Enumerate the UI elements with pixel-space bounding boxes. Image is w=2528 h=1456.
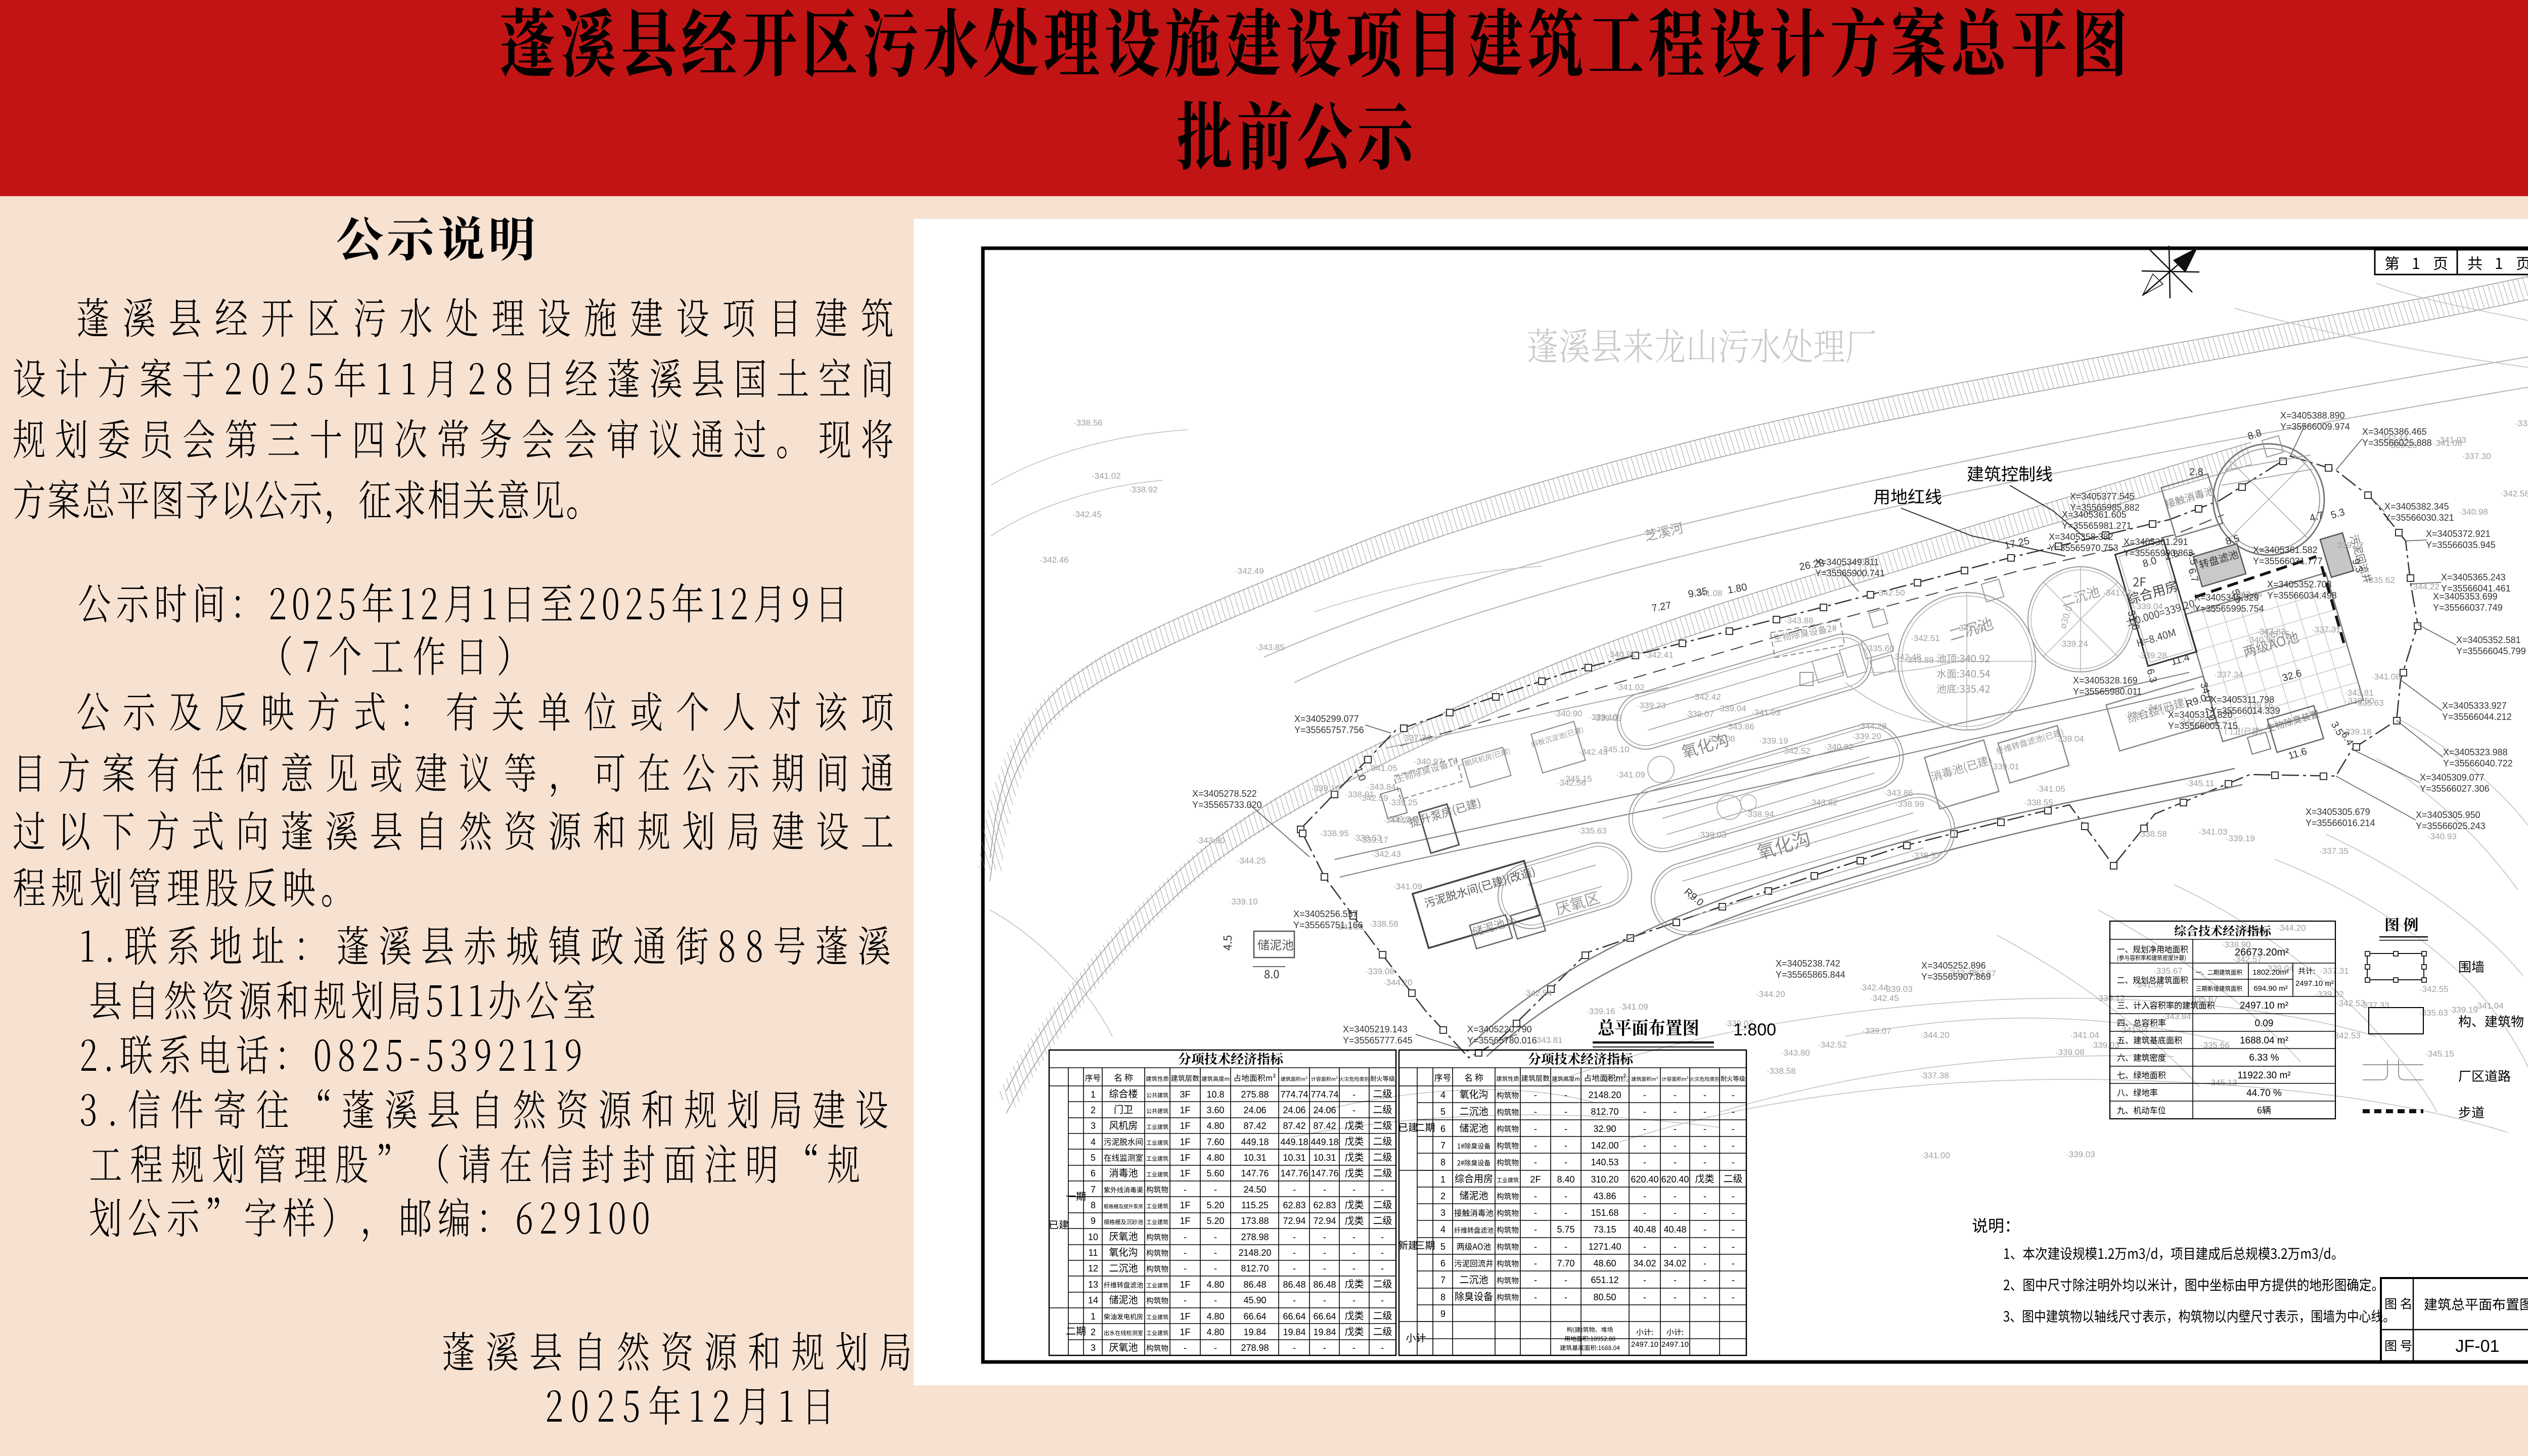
svg-text:Y=35566009.974: Y=35566009.974 [2280,422,2350,432]
svg-text:2148.20: 2148.20 [1238,1248,1271,1258]
svg-text:-: - [1732,1191,1735,1201]
svg-text:X=3405345.329: X=3405345.329 [2194,593,2259,603]
svg-text:·339.19: ·339.19 [2226,834,2255,843]
svg-text:·341.05: ·341.05 [2036,784,2065,794]
svg-text:·341.09: ·341.09 [1616,770,1645,780]
svg-text:X=3405352.703: X=3405352.703 [2267,579,2332,589]
svg-text:2497.10: 2497.10 [1631,1340,1658,1349]
svg-text:·338.58: ·338.58 [1767,1066,1796,1076]
svg-text:·340.90: ·340.90 [1553,709,1583,718]
svg-text:·341.08: ·341.08 [2371,672,2401,681]
svg-text:278.98: 278.98 [1241,1232,1269,1242]
svg-text:0.09: 0.09 [2255,1018,2274,1029]
svg-text:87.42: 87.42 [1243,1121,1266,1131]
svg-text:-: - [1534,1242,1537,1252]
svg-text:10: 10 [1088,1232,1098,1242]
svg-text:Y=35565900.741: Y=35565900.741 [1815,568,1885,578]
svg-text:4: 4 [1091,1137,1096,1147]
svg-text:·341.02: ·341.02 [2103,588,2132,598]
svg-text:5.20: 5.20 [1206,1200,1224,1210]
svg-text:151.68: 151.68 [1591,1208,1618,1218]
svg-text:-: - [1184,1263,1187,1273]
svg-text:-: - [1703,1157,1706,1167]
svg-text:·345.15: ·345.15 [2425,1049,2454,1059]
svg-text:·345.11: ·345.11 [2186,779,2214,788]
svg-text:·339.08: ·339.08 [1365,967,1394,976]
svg-text:3: 3 [1091,1121,1096,1131]
svg-text:-: - [1643,1208,1646,1218]
svg-text:87.42: 87.42 [1313,1121,1336,1131]
svg-text:X=3405361.605: X=3405361.605 [2062,510,2127,520]
svg-text:X=3405386.465: X=3405386.465 [2362,427,2427,437]
svg-text:1: 1 [1091,1311,1096,1322]
svg-text:3: 3 [1091,1343,1096,1353]
svg-text:4.80: 4.80 [1206,1311,1224,1322]
svg-text:·339.04: ·339.04 [2055,734,2084,744]
svg-text:X=3405372.921: X=3405372.921 [2426,529,2491,539]
svg-text:·342.52: ·342.52 [1601,1074,1631,1084]
svg-text:66.64: 66.64 [1283,1311,1305,1322]
svg-text:·341.05: ·341.05 [1368,763,1397,773]
svg-text:4.80: 4.80 [1206,1280,1224,1290]
svg-text:2497.10 m²: 2497.10 m² [2295,979,2334,988]
svg-text:8: 8 [1091,1200,1096,1210]
svg-text:-: - [1323,1343,1326,1353]
svg-text:4.80: 4.80 [1206,1121,1224,1131]
svg-text:13: 13 [1088,1280,1098,1290]
svg-text:·339.08: ·339.08 [2055,1048,2085,1057]
svg-text:62.83: 62.83 [1313,1200,1336,1210]
svg-text:6: 6 [1091,1168,1096,1178]
svg-text:·343.81: ·343.81 [2344,688,2374,698]
svg-text:9: 9 [1091,1216,1096,1226]
svg-text:X=3405311.798: X=3405311.798 [2210,695,2274,705]
svg-text:·342.51: ·342.51 [1911,633,1940,643]
svg-text:1F: 1F [1180,1327,1190,1337]
svg-text:·338.57: ·338.57 [1911,851,1940,860]
svg-text:-: - [1323,1263,1326,1273]
svg-text:·339.20: ·339.20 [1852,732,1881,741]
svg-text:5.20: 5.20 [1206,1216,1224,1226]
svg-text:X=3405361.291: X=3405361.291 [2124,537,2188,547]
svg-text:·343.86: ·343.86 [1725,722,1754,732]
svg-text:5: 5 [1440,1242,1446,1252]
svg-text:86.48: 86.48 [1243,1280,1266,1290]
svg-text:·339.19: ·339.19 [1311,784,1340,793]
svg-text:·341.04: ·341.04 [2474,1001,2504,1011]
svg-text:-: - [1703,1141,1706,1151]
svg-text:·344.20: ·344.20 [2277,923,2306,933]
svg-text:-: - [1703,1124,1706,1134]
svg-text:-: - [1703,1275,1706,1285]
svg-text:310.20: 310.20 [1591,1174,1618,1185]
svg-text:X=3405305.679: X=3405305.679 [2306,807,2370,817]
svg-text:-: - [1674,1242,1677,1252]
svg-text:2.8: 2.8 [2189,467,2203,478]
svg-text:·339.24: ·339.24 [1386,814,1416,824]
svg-text:Y=35566014.339: Y=35566014.339 [2210,706,2280,716]
svg-text:-: - [1564,1157,1567,1167]
svg-text:-: - [1534,1090,1537,1100]
svg-text:·338.56: ·338.56 [1073,418,1103,428]
svg-text:·342.50: ·342.50 [1876,588,1905,598]
svg-text:·339.02: ·339.02 [2334,540,2364,550]
svg-text:-: - [1323,1248,1326,1258]
svg-text:-: - [1703,1208,1706,1218]
svg-text:-: - [1643,1090,1646,1100]
svg-text:·335.63: ·335.63 [1577,826,1607,836]
svg-text:X=3405377.545: X=3405377.545 [2070,491,2135,502]
svg-text:·341.03: ·341.03 [2198,827,2228,837]
svg-text:-: - [1674,1124,1677,1134]
svg-text:-: - [1381,1263,1384,1273]
svg-text:·338.99: ·338.99 [1895,799,1924,809]
svg-text:26673.20m²: 26673.20m² [2235,947,2289,958]
svg-text:2F: 2F [1530,1174,1541,1185]
svg-text:-: - [1674,1090,1677,1100]
svg-text:·342.56: ·342.56 [1557,778,1586,788]
svg-text:115.25: 115.25 [1241,1200,1269,1210]
svg-text:Y=35565780.016: Y=35565780.016 [1467,1035,1537,1045]
svg-text:-: - [1703,1090,1706,1100]
svg-text:-: - [1732,1124,1735,1134]
svg-text:774.74: 774.74 [1311,1089,1338,1100]
svg-text:·337.34: ·337.34 [1402,733,1431,743]
svg-text:5: 5 [1091,1153,1096,1163]
svg-text:-: - [1381,1343,1384,1353]
svg-text:-: - [1293,1295,1296,1305]
svg-text:-: - [1732,1292,1735,1302]
svg-text:6.33 %: 6.33 % [2249,1053,2279,1063]
svg-text:·342.46: ·342.46 [1040,555,1069,565]
svg-text:-: - [1674,1157,1677,1167]
svg-text:-: - [1674,1275,1677,1285]
svg-text:8.40: 8.40 [1557,1174,1574,1185]
svg-text:72.94: 72.94 [1313,1216,1336,1226]
svg-text:-: - [1732,1242,1735,1252]
svg-text:Y=35566005.715: Y=35566005.715 [2168,721,2238,731]
svg-text:·343.82: ·343.82 [1809,798,1838,807]
svg-text:-: - [1564,1191,1567,1201]
svg-text:·343.80: ·343.80 [1781,1048,1810,1058]
svg-text:·340.92: ·340.92 [1824,742,1854,752]
svg-text:-: - [1534,1191,1537,1201]
svg-text:10.31: 10.31 [1243,1153,1266,1163]
svg-text:6: 6 [1440,1124,1446,1134]
svg-text:·339.07: ·339.07 [1685,709,1714,719]
svg-text:·343.88: ·343.88 [1784,616,1814,625]
svg-text:-: - [1732,1258,1735,1268]
svg-text:8: 8 [1440,1157,1446,1167]
svg-text:7: 7 [1440,1141,1446,1151]
svg-text:48.60: 48.60 [1593,1258,1616,1268]
svg-text:9: 9 [1440,1309,1446,1319]
svg-text:-: - [1214,1295,1217,1305]
svg-text:·344.20: ·344.20 [1383,978,1413,987]
svg-text:·341.03: ·341.03 [2437,435,2466,445]
svg-text:-: - [1352,1343,1356,1353]
svg-text:10.8: 10.8 [1206,1089,1224,1100]
svg-text:1802.20m²: 1802.20m² [2252,968,2289,977]
svg-text:Y=35565981.271: Y=35565981.271 [2062,521,2132,531]
svg-text:·339.28: ·339.28 [2138,651,2167,660]
svg-text:4.80: 4.80 [1206,1327,1224,1337]
svg-text:147.76: 147.76 [1241,1168,1269,1178]
svg-text:·340.97: ·340.97 [1414,757,1443,766]
svg-text:-: - [1703,1242,1706,1252]
svg-text:·339.10: ·339.10 [1229,897,1258,906]
svg-text:147.76: 147.76 [1280,1168,1308,1178]
svg-text:·339.07: ·339.07 [1862,1026,1891,1036]
svg-text:1F: 1F [1180,1153,1190,1163]
svg-text:-: - [1214,1263,1217,1273]
svg-text:·337.38: ·337.38 [1920,1071,1949,1080]
svg-text:·337.34: ·337.34 [2214,670,2243,679]
svg-text:-: - [1352,1263,1356,1273]
svg-text:44.70 %: 44.70 % [2246,1088,2282,1099]
svg-text:-: - [1643,1191,1646,1201]
svg-text:-: - [1534,1258,1537,1268]
svg-text:2: 2 [1091,1327,1096,1337]
svg-text:1:800: 1:800 [1733,1020,1776,1039]
svg-text:·339.01: ·339.01 [1990,762,2019,771]
svg-text:·342.58: ·342.58 [2500,489,2528,498]
svg-text:-: - [1352,1185,1356,1195]
svg-text:12: 12 [1088,1263,1098,1273]
svg-text:1: 1 [1091,1089,1096,1100]
svg-text:Y=35566040.722: Y=35566040.722 [2443,758,2513,768]
svg-text:·339.16: ·339.16 [1586,1007,1615,1016]
svg-text:-: - [1564,1090,1567,1100]
svg-text:·339.17: ·339.17 [1359,835,1388,845]
svg-text:-: - [1732,1090,1735,1100]
svg-text:Y=35566025.888: Y=35566025.888 [2362,438,2432,448]
svg-text:19.84: 19.84 [1283,1327,1305,1337]
svg-text:-: - [1352,1295,1356,1305]
svg-text:X=3405220.790: X=3405220.790 [1467,1024,1532,1034]
svg-text:-: - [1674,1191,1677,1201]
svg-text:10.31: 10.31 [1283,1153,1305,1163]
svg-text:87.42: 87.42 [1283,1121,1305,1131]
svg-text:·342.41: ·342.41 [1644,650,1674,660]
svg-text:-: - [1381,1295,1384,1305]
svg-text:·343.80: ·343.80 [1196,836,1225,845]
svg-text:-: - [1293,1232,1296,1242]
svg-text:8: 8 [1440,1292,1446,1302]
svg-text:-: - [1293,1248,1296,1258]
svg-text:·338.92: ·338.92 [1128,485,1158,494]
svg-text:-: - [1564,1141,1567,1151]
svg-text:·340.93: ·340.93 [2427,832,2457,841]
svg-text:620.40: 620.40 [1631,1174,1658,1185]
svg-text:·341.04: ·341.04 [2070,1030,2099,1040]
svg-text:-: - [1643,1242,1646,1252]
svg-text:Y=35565777.645: Y=35565777.645 [1343,1035,1413,1045]
svg-text:Y=35566034.498: Y=35566034.498 [2267,590,2337,601]
svg-text:-: - [1381,1248,1384,1258]
svg-text:Y=35565990.863: Y=35565990.863 [2124,548,2193,558]
svg-text:·342.55: ·342.55 [2419,984,2449,994]
svg-text:Y=35566030.321: Y=35566030.321 [2384,513,2454,523]
svg-text:-: - [1214,1185,1217,1195]
svg-text:11: 11 [1089,1248,1098,1258]
svg-text:·342.49: ·342.49 [1235,566,1264,576]
svg-text:·343.83: ·343.83 [2256,627,2286,636]
svg-text:-: - [1643,1141,1646,1151]
svg-text:-: - [1643,1157,1646,1167]
svg-text:X=3405252.896: X=3405252.896 [1921,961,1986,971]
svg-text:·335.60: ·335.60 [1865,644,1894,653]
svg-text:-: - [1703,1224,1706,1235]
svg-text:7.60: 7.60 [1206,1137,1224,1147]
svg-text:3.60: 3.60 [1206,1105,1224,1115]
svg-text:66.64: 66.64 [1313,1311,1336,1322]
svg-text:·337.31: ·337.31 [2320,966,2349,976]
svg-text:X=3405238.742: X=3405238.742 [1776,959,1840,969]
svg-text:·339.02: ·339.02 [2315,989,2344,999]
svg-text:·337.30: ·337.30 [2462,451,2491,461]
svg-text:2: 2 [1440,1191,1446,1201]
svg-text:·339.19: ·339.19 [2449,1005,2478,1015]
svg-text:-: - [1534,1275,1537,1285]
svg-text:-: - [1352,1248,1356,1258]
svg-text:·342.52: ·342.52 [1818,1040,1847,1050]
svg-text:812.70: 812.70 [1591,1107,1618,1117]
svg-text:·335.67: ·335.67 [2153,966,2183,976]
svg-text:X=3405352.581: X=3405352.581 [2456,635,2521,645]
svg-text:40.48: 40.48 [1663,1224,1686,1235]
svg-text:19.84: 19.84 [1243,1327,1266,1337]
svg-text:·338.58: ·338.58 [2138,829,2167,839]
svg-text:-: - [1323,1232,1326,1242]
svg-text:-: - [1352,1089,1356,1100]
svg-text:-: - [1674,1208,1677,1218]
svg-text:X=3405361.582: X=3405361.582 [2253,545,2318,555]
svg-text:X=3405278.522: X=3405278.522 [1192,789,1257,799]
svg-text:-: - [1534,1107,1537,1117]
svg-text:X=3405309.077: X=3405309.077 [2420,772,2485,783]
svg-text:·341.03: ·341.03 [1751,708,1781,717]
svg-text:-: - [1732,1141,1735,1151]
svg-text:1: 1 [1440,1174,1446,1185]
svg-text:774.74: 774.74 [1280,1089,1308,1100]
svg-text:-: - [1732,1157,1735,1167]
svg-text:·337.33: ·337.33 [2360,1000,2389,1010]
svg-text:·339.03: ·339.03 [2066,1150,2095,1159]
svg-text:·339.24: ·339.24 [2059,639,2088,649]
svg-text:·338.58: ·338.58 [1369,919,1398,929]
svg-text:-: - [1214,1232,1217,1242]
svg-text:-: - [1184,1232,1187,1242]
svg-text:-: - [1381,1232,1384,1242]
svg-text:66.64: 66.64 [1243,1311,1266,1322]
svg-text:-: - [1643,1124,1646,1134]
svg-text:11922.30 m²: 11922.30 m² [2237,1070,2290,1081]
svg-text:34.02: 34.02 [1663,1258,1686,1268]
svg-text:7: 7 [1091,1185,1096,1195]
svg-text:X=3405323.988: X=3405323.988 [2443,747,2508,757]
svg-text:·344.20: ·344.20 [1920,1030,1950,1040]
svg-text:Y=35565980.011: Y=35565980.011 [2073,687,2142,697]
svg-text:-: - [1184,1248,1187,1258]
svg-text:X=3405328.169: X=3405328.169 [2073,675,2138,686]
svg-text:·339.19: ·339.19 [1759,736,1788,746]
svg-text:X=3405256.557: X=3405256.557 [1293,909,1358,919]
svg-text:·342.52: ·342.52 [1781,746,1811,756]
svg-text:·341.00: ·341.00 [1921,1151,1950,1160]
svg-text:-: - [1564,1275,1567,1285]
svg-text:173.88: 173.88 [1241,1216,1269,1226]
svg-text:·340.98: ·340.98 [2459,507,2488,517]
svg-text:-: - [1732,1107,1735,1117]
svg-text:4.80: 4.80 [1206,1153,1224,1163]
svg-text:45.90: 45.90 [1243,1295,1266,1305]
svg-text:Y=35566037.749: Y=35566037.749 [2433,603,2503,613]
svg-text:34.02: 34.02 [1633,1258,1656,1268]
svg-text:·335.63: ·335.63 [2355,698,2384,708]
svg-text:JF-01: JF-01 [2456,1337,2500,1356]
svg-text:·344.28: ·344.28 [1858,721,1887,731]
svg-text:Y=35566044.212: Y=35566044.212 [2442,712,2512,722]
svg-text:275.88: 275.88 [1241,1089,1269,1100]
svg-text:-: - [1214,1248,1217,1258]
svg-text:1F: 1F [1180,1137,1190,1147]
svg-text:-: - [1352,1232,1356,1242]
svg-text:Y=35566045.799: Y=35566045.799 [2456,646,2526,656]
svg-text:X=3405365.243: X=3405365.243 [2441,572,2506,582]
svg-text:·341.09: ·341.09 [1619,1002,1648,1012]
svg-text:24.06: 24.06 [1283,1105,1305,1115]
svg-text:-: - [1703,1292,1706,1302]
svg-text:3F: 3F [1180,1089,1190,1100]
svg-text:·343.89: ·343.89 [1905,655,1934,665]
svg-text:X=3405353.699: X=3405353.699 [2433,591,2498,602]
svg-text:·342.42: ·342.42 [1692,692,1721,702]
svg-text:5.60: 5.60 [1206,1168,1224,1178]
svg-text:·342.45: ·342.45 [1870,993,1899,1003]
svg-text:-: - [1534,1157,1537,1167]
svg-text:-: - [1564,1208,1567,1218]
svg-text:·337.31: ·337.31 [2312,625,2341,634]
svg-text:-: - [1534,1292,1537,1302]
svg-text:Y=35565970.753: Y=35565970.753 [2049,543,2118,553]
svg-text:-: - [1534,1208,1537,1218]
svg-text:·339.25: ·339.25 [1388,798,1418,807]
svg-text:-: - [1323,1185,1326,1195]
svg-text:5.75: 5.75 [1557,1224,1574,1235]
svg-text:1F: 1F [1180,1105,1190,1115]
svg-text:40.48: 40.48 [1633,1224,1656,1235]
svg-text:-: - [1184,1295,1187,1305]
svg-text:Y=35566016.214: Y=35566016.214 [2306,818,2375,828]
svg-text:142.00: 142.00 [1591,1141,1618,1151]
svg-text:-: - [1184,1185,1187,1195]
svg-text:·339.03: ·339.03 [1697,830,1727,840]
svg-text:7: 7 [1440,1275,1446,1285]
svg-text:Y=35565995.754: Y=35565995.754 [2194,604,2264,614]
svg-text:·343.86: ·343.86 [1884,788,1913,798]
svg-text:Y=35565757.756: Y=35565757.756 [1294,725,1364,735]
svg-text:2: 2 [1091,1105,1096,1115]
svg-text:1688.04 m²: 1688.04 m² [2240,1035,2288,1046]
svg-text:2497.10 m²: 2497.10 m² [2240,1000,2288,1011]
svg-text:1271.40: 1271.40 [1588,1242,1621,1252]
svg-text:147.76: 147.76 [1311,1168,1338,1178]
svg-text:1F: 1F [1180,1121,1190,1131]
svg-text:-: - [1674,1141,1677,1151]
svg-text:-: - [1534,1124,1537,1134]
svg-text:1F: 1F [1180,1216,1190,1226]
